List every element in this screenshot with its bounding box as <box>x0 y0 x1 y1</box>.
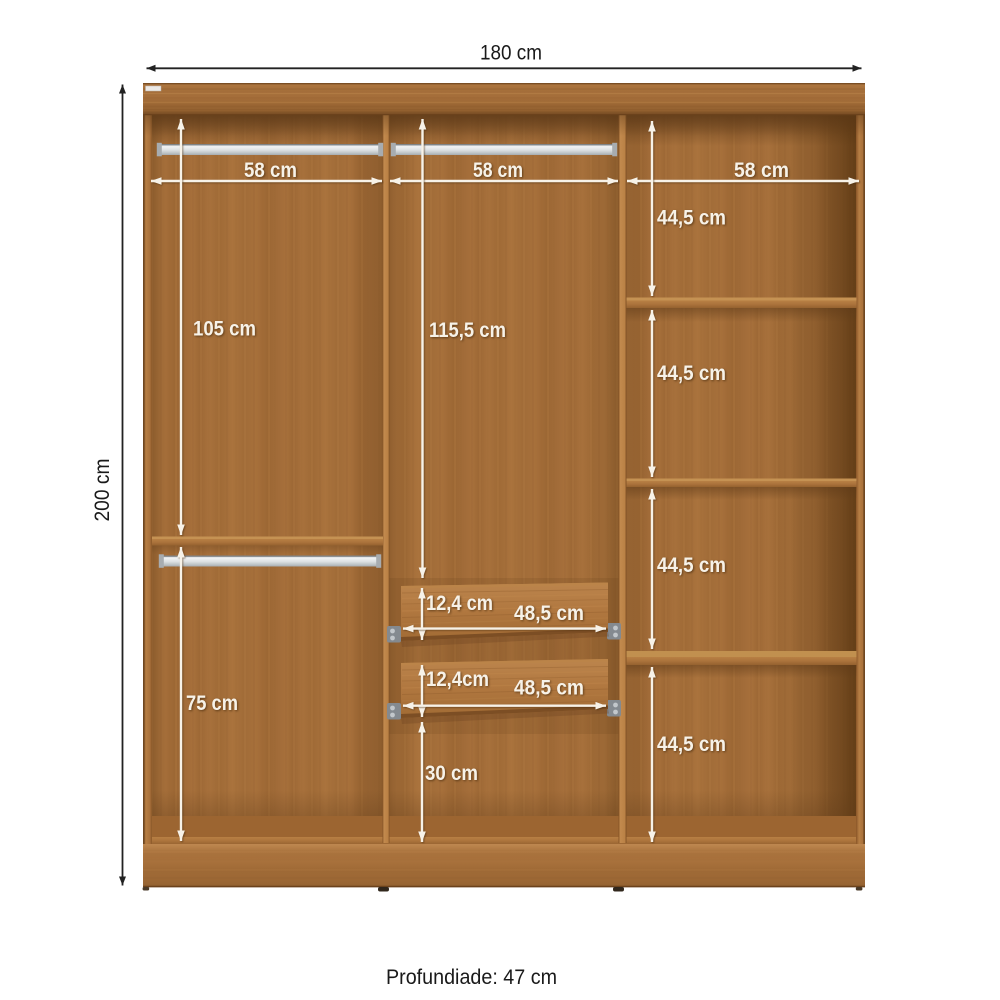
svg-text:Profundiade: 47 cm: Profundiade: 47 cm <box>386 965 557 989</box>
svg-text:12,4cm: 12,4cm <box>426 668 489 691</box>
svg-text:58 cm: 58 cm <box>244 159 297 182</box>
svg-text:48,5 cm: 48,5 cm <box>514 677 584 700</box>
svg-text:44,5 cm: 44,5 cm <box>657 733 726 756</box>
svg-text:44,5 cm: 44,5 cm <box>657 207 726 230</box>
svg-text:44,5 cm: 44,5 cm <box>657 554 726 577</box>
svg-text:58 cm: 58 cm <box>473 159 523 182</box>
svg-text:44,5 cm: 44,5 cm <box>657 362 726 385</box>
svg-text:115,5 cm: 115,5 cm <box>429 319 506 342</box>
svg-text:30 cm: 30 cm <box>425 762 478 785</box>
svg-text:200 cm: 200 cm <box>91 459 114 522</box>
svg-text:58 cm: 58 cm <box>734 159 789 182</box>
svg-text:180 cm: 180 cm <box>480 41 542 64</box>
svg-text:75 cm: 75 cm <box>186 692 238 715</box>
svg-text:12,4 cm: 12,4 cm <box>426 592 493 615</box>
svg-text:105 cm: 105 cm <box>193 318 256 341</box>
svg-text:48,5 cm: 48,5 cm <box>514 602 584 625</box>
